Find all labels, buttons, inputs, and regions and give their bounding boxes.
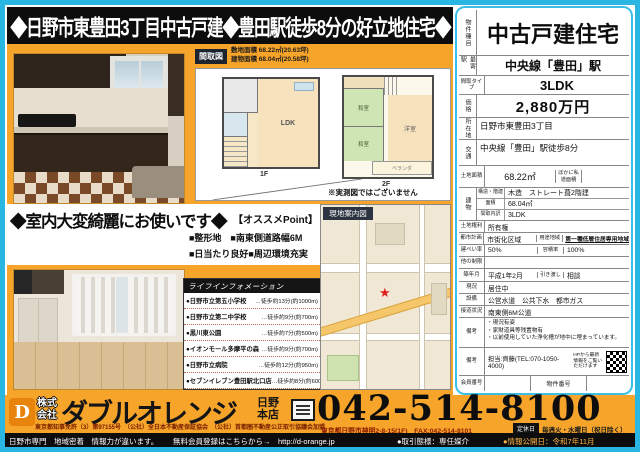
far-label: 容積率 [537, 247, 564, 253]
2f-western-room: 洋室 [388, 95, 432, 161]
holiday-label: 定休日 [513, 423, 539, 433]
company-logo: D [9, 398, 35, 426]
row-land-area: 土地面積 68.22㎡ ほかに私道面積 [459, 166, 629, 188]
floorplan-box: LDK 1F 和室 和室 洋室 ベランダ [195, 68, 451, 201]
poi-distance: …徒歩約9分(約700m) [262, 344, 318, 353]
flyer-inner: ◆日野市東豊田3丁目中古戸建◆豊田駅徒歩8分の好立地住宅◆ 間取図 敷地面積 6… [5, 5, 635, 447]
floorplan-2f: 和室 和室 洋室 ベランダ [342, 75, 434, 179]
remark-line: ・現況有姿 [487, 320, 515, 328]
poi-name: ●日野市立病院 [186, 360, 228, 369]
floorplan-note: ※実測図ではございません [328, 187, 418, 198]
2f-closet [344, 77, 384, 89]
published-date: ●情報公開日：令和7年11月 [503, 436, 595, 447]
room-window [72, 274, 176, 336]
private-road-label: ほかに私道面積 [555, 170, 582, 182]
main-area: 間取図 敷地面積 68.22㎡(20.63坪) 建物面積 68.04㎡(20.5… [7, 44, 453, 395]
life-info-row: ●日野市立第五小学校 …徒歩約13分(約1000m) [184, 293, 320, 309]
contact-remarks-label: 備考 [459, 348, 485, 375]
poi-distance: …徒歩約13分(約1000m) [255, 296, 318, 305]
strip-registration-url: 無料会員登録はこちらから→ http://d-orange.jp [173, 436, 335, 447]
access-value: 中央線「豊田」駅徒歩8分 [477, 140, 629, 165]
footer: D 株式 会社 ダブルオレンジ 日野 本店 東京都知事免許（3）第97155号 … [5, 395, 635, 447]
building-structure-row: 構造・階建 木造 ストレート葺2階建 [477, 188, 629, 199]
layout-value: 3LDK [485, 78, 629, 93]
deal-type: ●取引態様：専任媒介 [397, 436, 469, 447]
zone-label: 用途地域 [536, 235, 563, 241]
license-text: 東京都知事免許（3）第97155号 （公社）全日本不動産保証協会 （公社）首都圏… [35, 422, 325, 431]
property-type-value: 中古戸建住宅 [477, 17, 629, 49]
2f-tatami-room-1: 和室 [344, 89, 384, 127]
map-park [327, 355, 359, 381]
building-area-label: 面積 [477, 199, 505, 209]
building-rooms-row: 間取内訳 3LDK [477, 210, 629, 220]
handover-value: 相談 [564, 270, 581, 280]
row-city-planning: 都市計画 市街化区域 用途地域 第一種低層住居専用地域 [459, 233, 629, 245]
life-info-table: ライフインフォメーション ●日野市立第五小学校 …徒歩約13分(約1000m) … [183, 278, 321, 390]
property-type-label: 物件種目 [459, 10, 477, 55]
structure-value: 木造 ストレート葺2階建 [505, 188, 629, 198]
building-area-row: 面積 68.04㎡ [477, 199, 629, 210]
1f-utility-room [224, 79, 258, 113]
1f-kitchen-counter [294, 82, 314, 91]
poi-name: ●イオンモール多摩平の森 [186, 344, 259, 353]
footer-strip: 日野市専門 地域密着 情報力が違います。 無料会員登録はこちらから→ http:… [5, 433, 635, 447]
location-label: 所在地 [459, 118, 477, 139]
map-road [321, 263, 451, 273]
land-rights-label: 土地権利 [459, 221, 485, 232]
branch-name: 日野 本店 [257, 397, 279, 421]
land-area-value: 68.22㎡ [485, 170, 555, 183]
row-coverage: 建ぺい率 50% 容積率 100% [459, 245, 629, 257]
curtain-left [75, 277, 116, 333]
map-road [321, 333, 451, 341]
status-label: 現況 [459, 282, 485, 293]
banner-title: ◆日野市東豊田3丁目中古戸建◆豊田駅徒歩8分の好立地住宅◆ [10, 9, 450, 42]
coverage-value: 50% [485, 247, 537, 254]
location-map: ★ 現地案内図 [320, 204, 451, 390]
map-road [359, 205, 367, 390]
row-other-restrictions: 他の制限 [459, 257, 629, 269]
city-planning-label: 都市計画 [459, 233, 484, 244]
kitchen-photo [13, 53, 185, 204]
coverage-label: 建ぺい率 [459, 245, 485, 256]
floorplan-tag: 間取図 [195, 49, 227, 64]
remark-line: ・以前使用していた浄化槽が地中に埋まっています。 [487, 335, 620, 343]
road-access-value: 南東側6M公道 [485, 306, 629, 317]
utilities-label: 設備 [459, 294, 485, 305]
points-title: 【オススメPoint】 [233, 211, 318, 226]
row-land-rights: 土地権利 所有権 [459, 221, 629, 233]
row-layout: 間取タイプ 3LDK [459, 76, 629, 95]
row-price: 価格 2,880万円 [459, 95, 629, 118]
price-label: 価格 [459, 95, 477, 117]
life-info-row: ●日野市立病院 …徒歩約12分(約950m) [184, 357, 320, 373]
structure-label: 構造・階建 [477, 188, 505, 198]
row-status: 現況 居住中 [459, 282, 629, 294]
poi-name: ●黒川東公園 [186, 328, 221, 337]
room-dark-corner [14, 270, 32, 294]
hp-note: HPから最新情報をご覧いただけます [573, 353, 604, 370]
row-road-access: 接道状況 南東側6M公道 [459, 306, 629, 318]
top-banner: ◆日野市東豊田3丁目中古戸建◆豊田駅徒歩8分の好立地住宅◆ [7, 7, 453, 44]
life-info-row: ●黒川東公園 …徒歩約7分(約500m) [184, 325, 320, 341]
location-value: 日野市東豊田3丁目 [477, 118, 629, 139]
poi-distance: …徒歩約7分(約500m) [262, 328, 318, 337]
life-info-row: ●日野市立第二中学校 …徒歩約9分(約700m) [184, 309, 320, 325]
2f-stairs [384, 77, 398, 95]
other-restrictions-value [485, 257, 629, 268]
flyer-page: ◆日野市東豊田3丁目中古戸建◆豊田駅徒歩8分の好立地住宅◆ 間取図 敷地面積 6… [0, 0, 640, 452]
1f-stairs [224, 137, 248, 167]
1f-bathroom [224, 113, 248, 137]
zone-value: 第一種低層住居専用地域 [563, 234, 629, 243]
building-label: 建物 [459, 188, 477, 220]
life-info-row: ●イオンモール多摩平の森 …徒歩約9分(約700m) [184, 341, 320, 357]
map-label: 現地案内図 [323, 207, 373, 220]
kitchen-clutter [132, 166, 185, 198]
far-value: 100% [564, 247, 584, 254]
row-contact: 備考 担当:齊藤(TEL:070-1050-4000) HPから最新情報をご覧い… [459, 348, 629, 376]
row-built-date: 築年月 平成1年2月 引き渡し 相談 [459, 269, 629, 282]
handover-label: 引き渡し [537, 272, 564, 278]
row-remarks: 備考 ・現況有姿 ・家財道具等残置物有 ・以前使用していた浄化槽が地中に埋まって… [459, 318, 629, 348]
road-access-label: 接道状況 [459, 306, 485, 317]
room-closet [18, 298, 58, 344]
site-area-text: 敷地面積 68.22㎡(20.63坪) [231, 47, 309, 56]
building-area-value: 68.04㎡ [505, 199, 629, 209]
point-2: ■日当たり良好■周辺環境充実 [189, 247, 308, 260]
row-building: 建物 構造・階建 木造 ストレート葺2階建 面積 68.04㎡ 間取内訳 3LD… [459, 188, 629, 221]
station-value: 中央線「豊田」駅 [477, 57, 629, 74]
2f-tatami-room-2: 和室 [344, 127, 384, 161]
kitchen-cooktop [18, 114, 76, 127]
2f-balcony: ベランダ [372, 161, 432, 175]
remarks-label: 備考 [459, 318, 485, 347]
land-area-label: 土地面積 [459, 166, 485, 187]
phone-icon [291, 399, 315, 421]
poi-distance: …徒歩約12分(約950m) [258, 360, 318, 369]
point-1: ■整形地 ■南東側道路幅6M [189, 231, 302, 244]
floorplan-1f: LDK [222, 77, 320, 169]
built-date-value: 平成1年2月 [485, 270, 537, 280]
appeal-strip: ◆室内大変綺麗にお使いです◆ 【オススメPoint】 ■整形地 ■南東側道路幅6… [7, 204, 320, 265]
strip-slogan: 日野市専門 地域密着 情報力が違います。 [9, 436, 158, 447]
contact-value: 担当:齊藤(TEL:070-1050-4000) [485, 354, 571, 375]
row-access: 交通 中央線「豊田」駅徒歩8分 [459, 140, 629, 166]
floor1-label: 1F [260, 171, 268, 178]
land-rights-value: 所有権 [485, 221, 629, 232]
other-restrictions-label: 他の制限 [459, 257, 485, 268]
poi-distance: …徒歩約9分(約700m) [262, 312, 318, 321]
rooms-value: 3LDK [505, 210, 629, 220]
map-marker-icon: ★ [379, 285, 391, 301]
row-station: 最寄駅 中央線「豊田」駅 [459, 56, 629, 76]
city-planning-value: 市街化区域 [484, 234, 536, 244]
company-prefix: 株式 会社 [37, 398, 57, 421]
phone-number: 042-514-8100 [317, 388, 602, 429]
station-label: 最寄駅 [459, 56, 477, 75]
map-building-block [431, 283, 447, 315]
poi-name: ●セブンイレブン豊田駅北口店 [186, 376, 272, 385]
poi-name: ●日野市立第五小学校 [186, 296, 246, 305]
room-photo [13, 269, 185, 390]
row-property-type: 物件種目 中古戸建住宅 [459, 10, 629, 56]
curtain-right [128, 277, 173, 333]
room-wood-floor [14, 342, 185, 390]
price-value: 2,880万円 [477, 96, 629, 117]
rooms-label: 間取内訳 [477, 210, 505, 220]
kitchen-right-cabinet [168, 54, 185, 116]
access-label: 交通 [459, 140, 477, 165]
utilities-value: 公営水道 公共下水 都市ガス [485, 294, 629, 305]
row-location: 所在地 日野市東豊田3丁目 [459, 118, 629, 140]
1f-ldk-room: LDK [258, 79, 318, 167]
spec-table: 物件種目 中古戸建住宅 最寄駅 中央線「豊田」駅 間取タイプ 3LDK 価格 2… [459, 10, 629, 391]
map-building-block [375, 223, 405, 245]
building-area-text: 建物面積 68.04㎡(20.58坪) [231, 56, 309, 65]
built-date-label: 築年月 [459, 269, 485, 281]
remark-line: ・家財道具等残置物有 [487, 328, 543, 336]
status-value: 居住中 [485, 282, 629, 293]
row-utilities: 設備 公営水道 公共下水 都市ガス [459, 294, 629, 306]
qr-code [606, 351, 627, 373]
spec-panel: 物件種目 中古戸建住宅 最寄駅 中央線「豊田」駅 間取タイプ 3LDK 価格 2… [455, 6, 633, 395]
life-info-title: ライフインフォメーション [184, 279, 320, 293]
layout-label: 間取タイプ [459, 76, 485, 94]
life-info-row: ●セブンイレブン豊田駅北口店 …徒歩約8分(約600m) [184, 373, 320, 389]
poi-name: ●日野市立第二中学校 [186, 312, 246, 321]
appeal-headline: ◆室内大変綺麗にお使いです◆ [10, 208, 227, 232]
floorplan-areas: 敷地面積 68.22㎡(20.63坪) 建物面積 68.04㎡(20.58坪) [231, 47, 309, 65]
